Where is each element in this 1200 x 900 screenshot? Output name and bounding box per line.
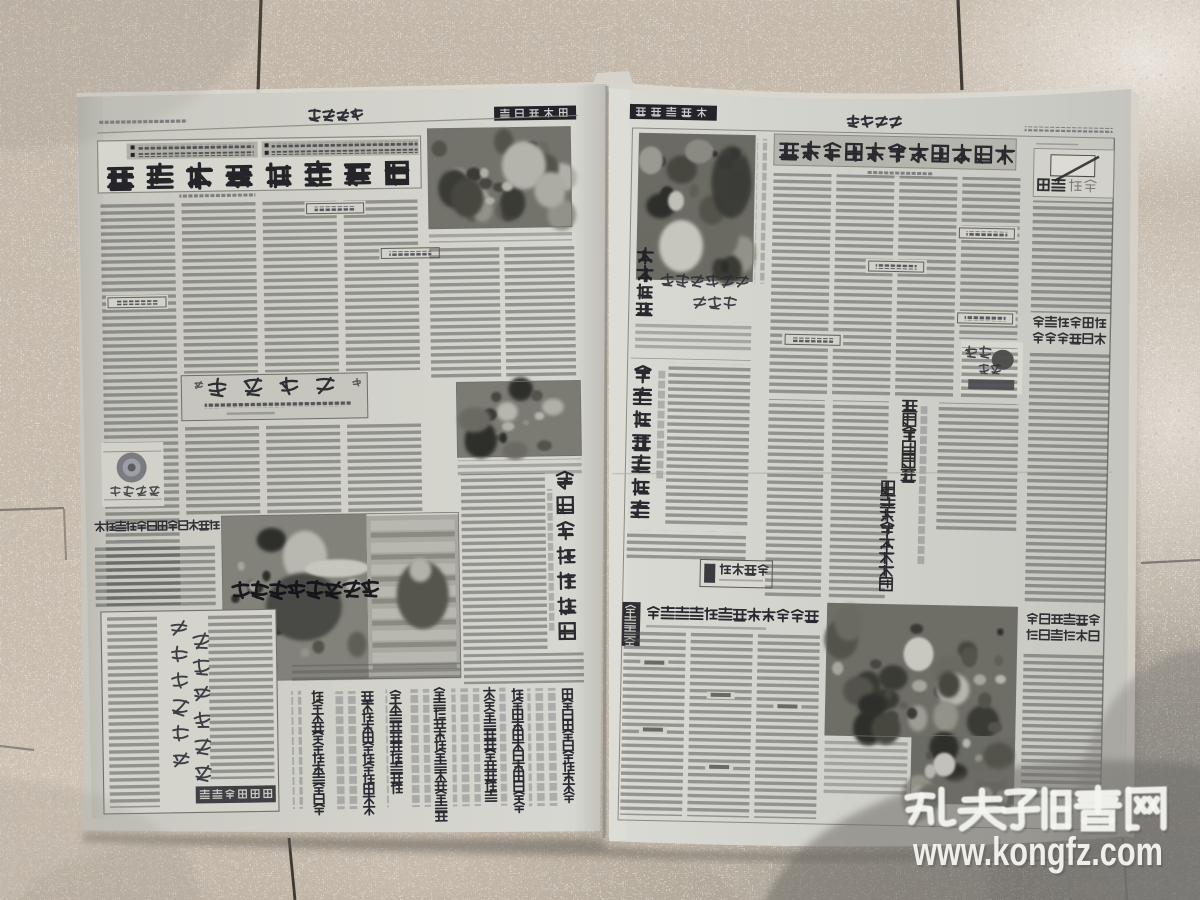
svg-text:www.kongfz.com: www.kongfz.com — [912, 830, 1163, 874]
